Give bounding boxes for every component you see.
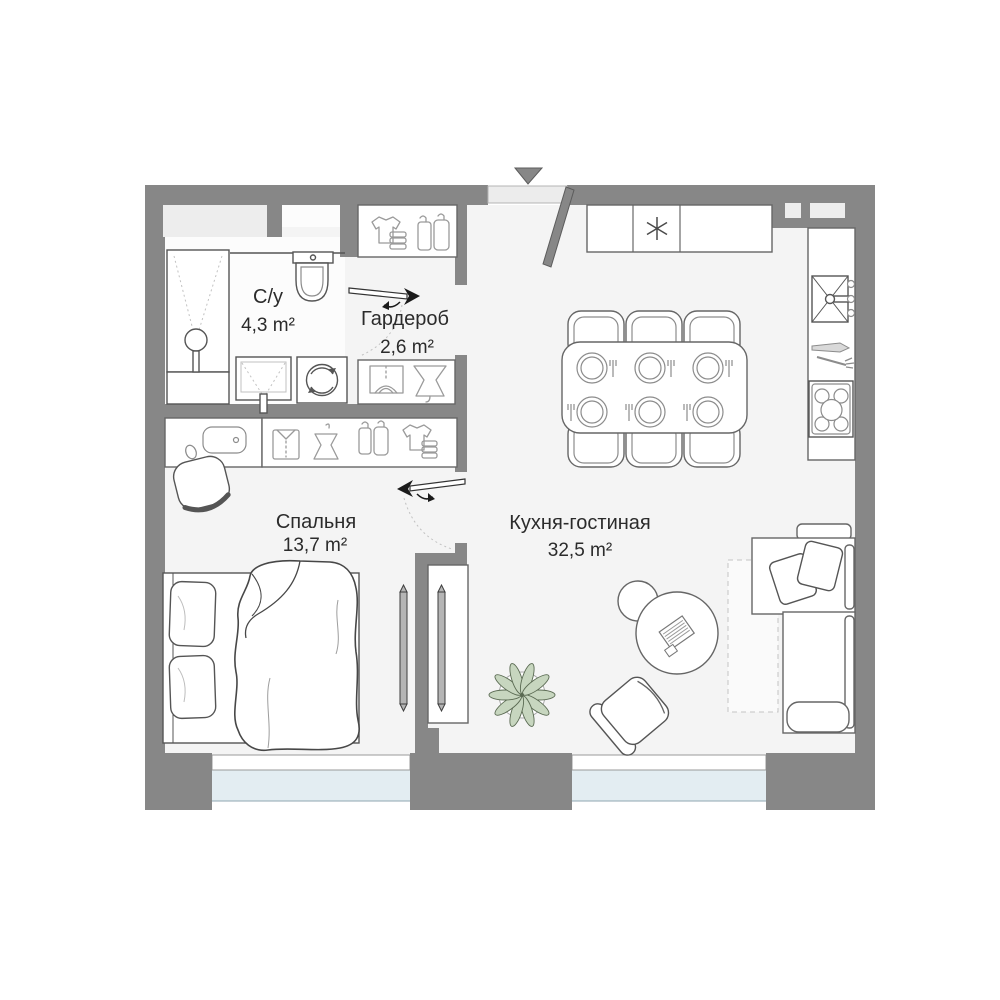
entrance-arrow-icon [515, 168, 542, 184]
floor-plan: С/у 4,3 m² Гардероб 2,6 m² Спальня 13,7 … [0, 0, 1000, 1000]
blanket [235, 561, 359, 751]
wardrobe-bottom-cabinet [358, 360, 455, 404]
floor-plan-page: С/у 4,3 m² Гардероб 2,6 m² Спальня 13,7 … [0, 0, 1000, 1000]
living-window [566, 755, 772, 801]
kitchen-sink-icon [812, 276, 855, 322]
bedroom-window [206, 755, 416, 801]
room-area-wardrobe: 2,6 m² [380, 337, 434, 358]
washing-machine-icon [297, 357, 347, 403]
room-label-wardrobe: Гардероб [361, 308, 449, 330]
tv-bedroom-icon [400, 585, 407, 711]
shower-head-icon [185, 329, 207, 351]
room-label-kitchen-living: Кухня-гостиная [509, 512, 651, 534]
sofa-armrest [787, 702, 849, 732]
room-area-bathroom: 4,3 m² [241, 315, 295, 336]
tv-living-icon [438, 585, 445, 711]
entrance-sill [488, 186, 567, 203]
dining-set [562, 311, 747, 467]
stove-icon [809, 381, 853, 437]
kitchen-upper-cabinets [587, 205, 772, 252]
shower [167, 250, 229, 404]
wardrobe-top-cabinet [358, 205, 457, 257]
room-label-bathroom: С/у [253, 286, 283, 308]
room-area-kitchen-living: 32,5 m² [548, 540, 612, 561]
bedroom-wardrobe [262, 418, 457, 467]
tv-console [428, 565, 468, 723]
room-area-bedroom: 13,7 m² [283, 535, 347, 556]
room-label-bedroom: Спальня [276, 511, 356, 533]
bed [163, 561, 359, 751]
